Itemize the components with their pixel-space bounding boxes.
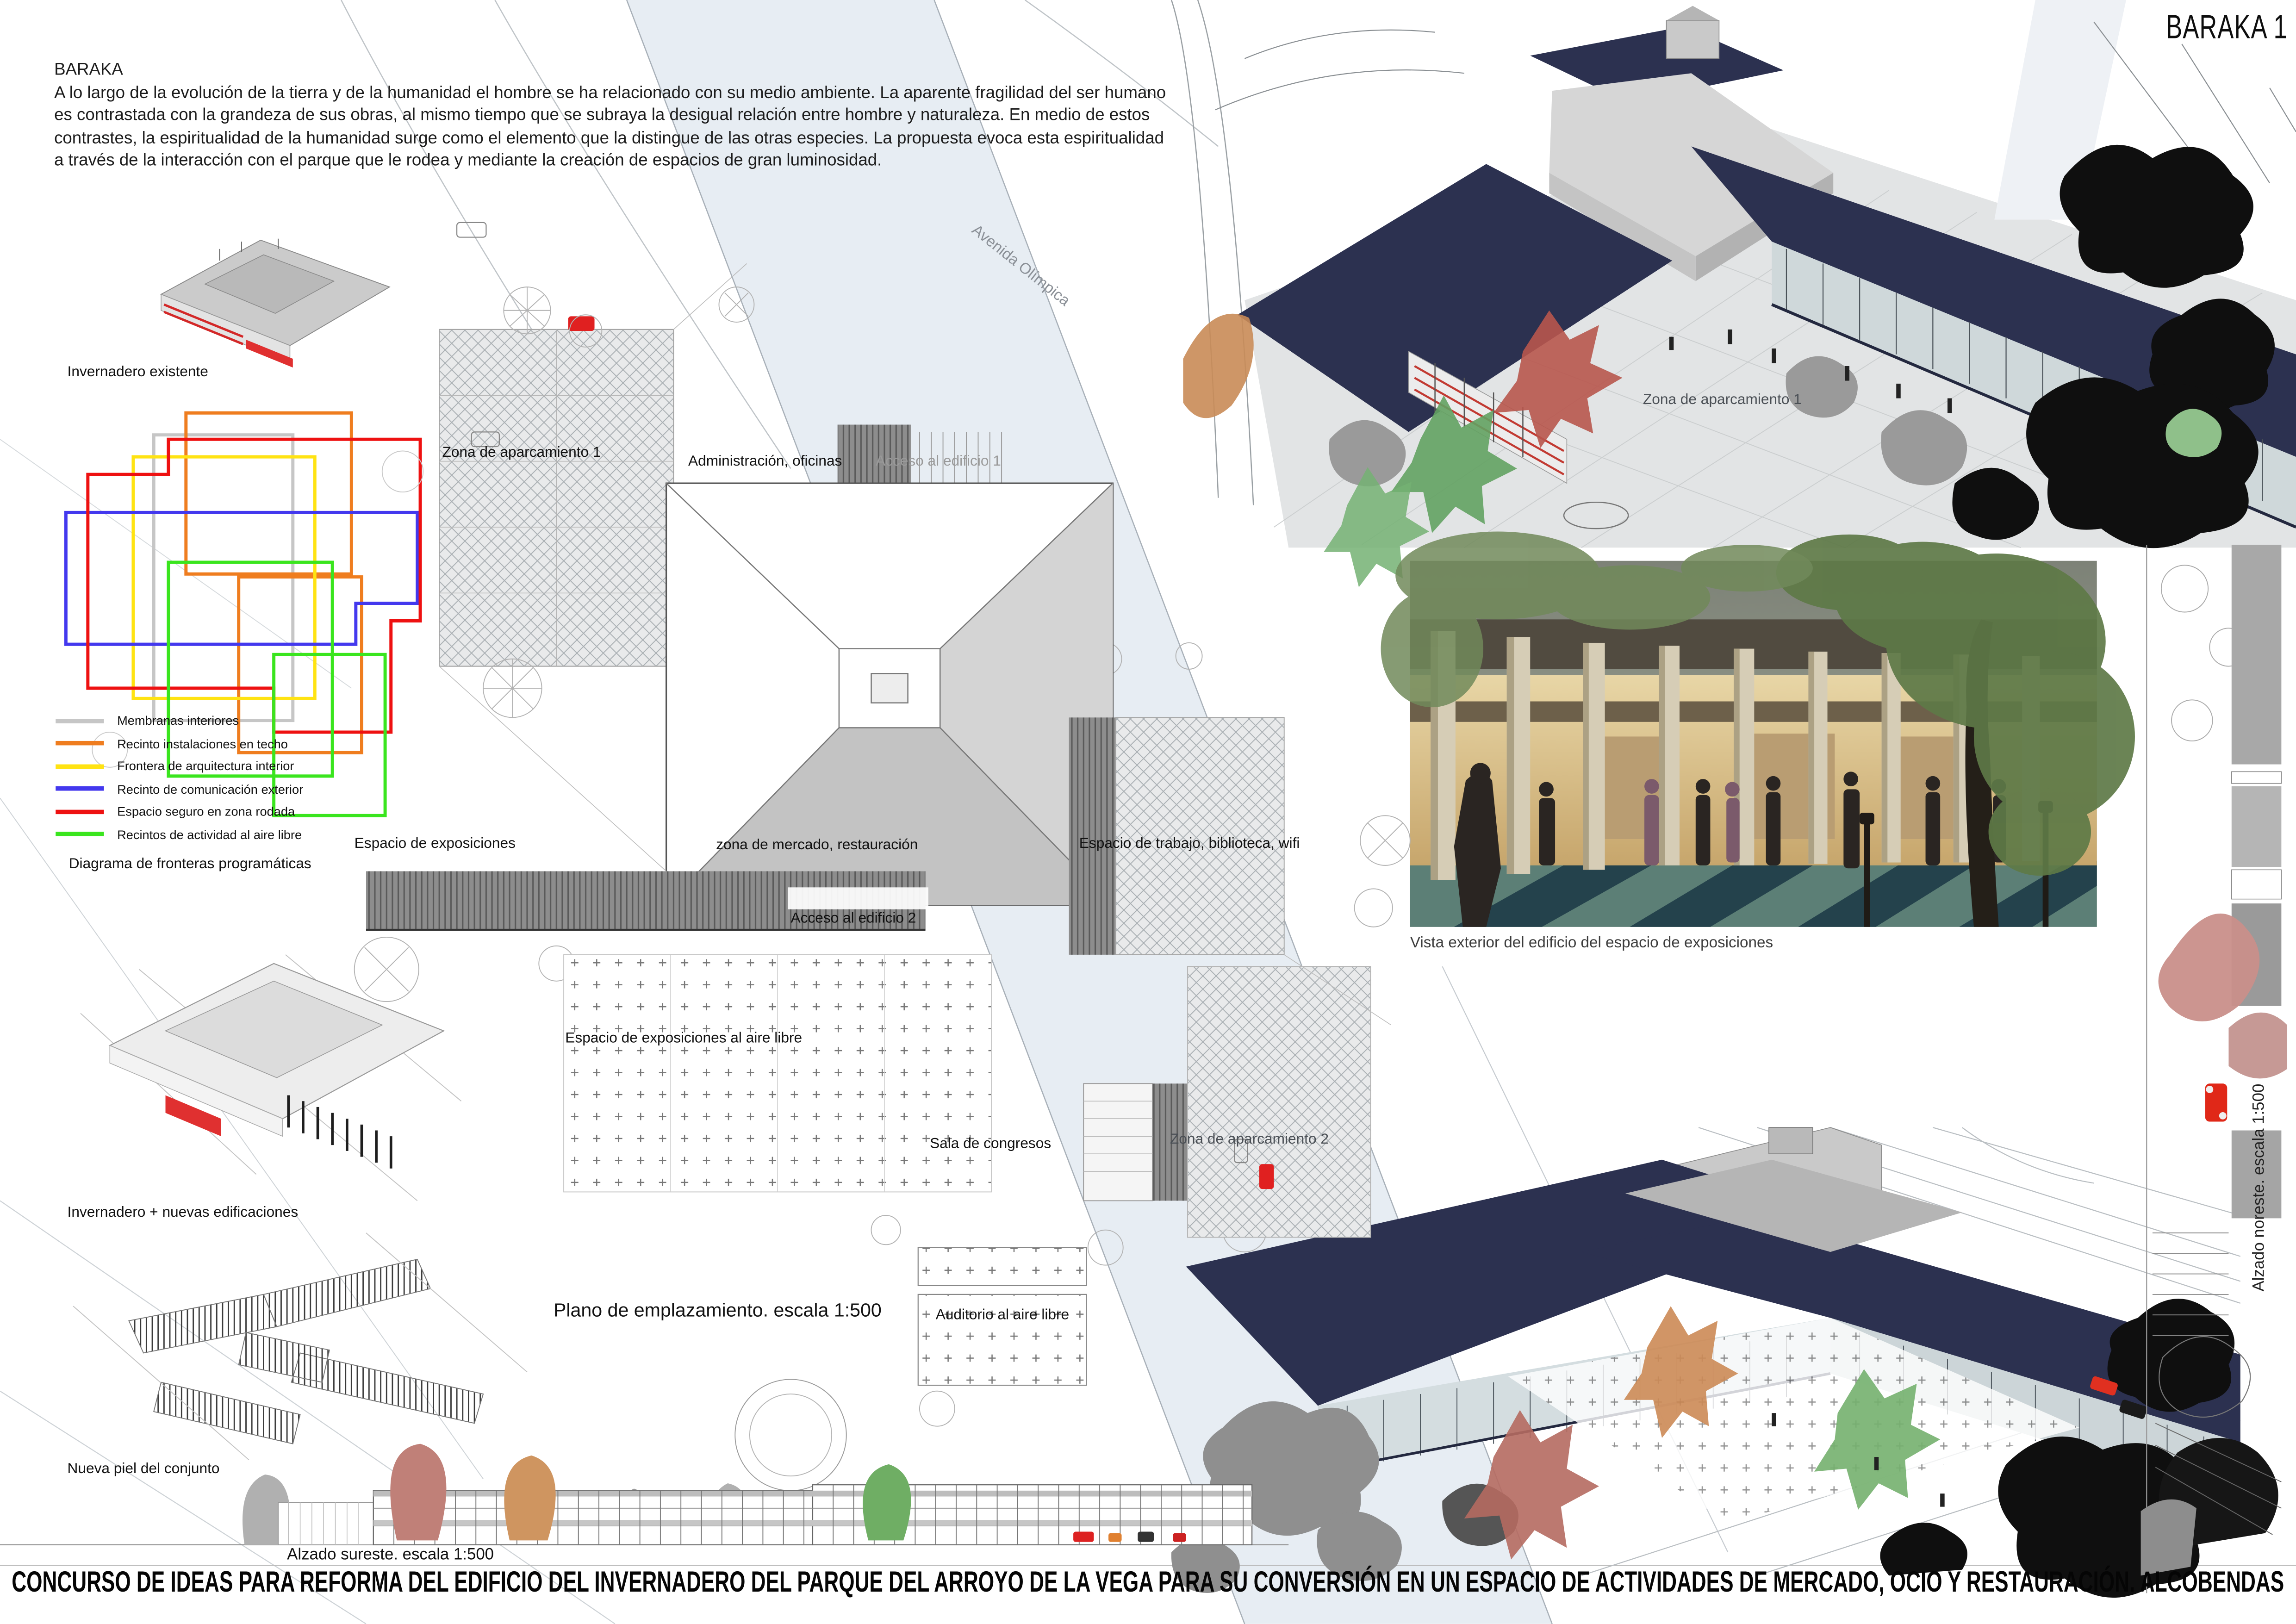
legend-swatch	[56, 718, 104, 722]
board-title: CONCURSO DE IDEAS PARA REFORMA DEL EDIFI…	[12, 1567, 1596, 1600]
label-elevation-southeast: Alzado sureste. escala 1:500	[287, 1546, 494, 1564]
label-auditorium: Auditorio al aire libre	[936, 1307, 1069, 1324]
panel-code: BARAKA 1	[2166, 7, 2288, 47]
legend-swatch	[56, 741, 104, 745]
label-existing-greenhouse: Invernadero existente	[68, 365, 208, 381]
existing-greenhouse-axon	[117, 229, 403, 369]
legend-item: Membranas interiores	[56, 713, 239, 728]
legend-swatch	[56, 809, 104, 813]
label-new-skin: Nueva piel del conjunto	[68, 1462, 220, 1478]
legend-item: Recinto de comunicación exterior	[56, 781, 303, 796]
competition-board: BARAKA A lo largo de la evolución de la …	[0, 0, 2296, 1623]
intro-paragraph: BARAKA A lo largo de la evolución de la …	[54, 59, 1173, 173]
render-photo-exterior	[1410, 561, 2097, 927]
label-parking1: Zona de aparcamiento 1	[442, 445, 601, 461]
elevation-low-block	[278, 1502, 373, 1545]
pink-tree-elevation	[390, 1444, 446, 1541]
legend-swatch	[56, 764, 104, 768]
red-car-plan	[568, 316, 595, 331]
green-tree-elevation	[863, 1464, 911, 1541]
intro-body: A lo largo de la evolución de la tierra …	[54, 83, 1166, 170]
label-admin: Administración, oficinas	[688, 454, 842, 470]
label-parking2: Zona de aparcamiento 2	[1170, 1132, 1329, 1148]
orange-tree-elevation	[504, 1456, 555, 1541]
label-access1: Acceso al edificio 1	[876, 454, 1001, 470]
elevation-northeast-strip	[2141, 545, 2296, 1593]
label-market: zona de mercado, restauración	[716, 838, 918, 854]
label-new-buildings: Invernadero + nuevas edificaciones	[68, 1205, 299, 1221]
plan-caption: Plano de emplazamiento. escala 1:500	[554, 1300, 882, 1321]
legend-swatch	[56, 786, 104, 790]
photo-caption: Vista exterior del edificio del espacio …	[1410, 936, 1773, 953]
label-congress: Sala de congresos	[930, 1136, 1051, 1152]
label-expo: Espacio de exposiciones	[355, 836, 516, 852]
greenhouse-new-buildings-axon	[81, 955, 461, 1207]
legend-item: Recinto instalaciones en techo	[56, 736, 288, 751]
legend-title: Diagrama de fronteras programáticas	[69, 857, 311, 873]
label-render-parking1: Zona de aparcamiento 1	[1643, 392, 1802, 409]
legend-item: Recintos de actividad al aire libre	[56, 827, 302, 841]
label-work: Espacio de trabajo, biblioteca, wifi	[1079, 836, 1300, 852]
parking2-area	[1188, 966, 1370, 1237]
elevation-southeast	[271, 1447, 1255, 1561]
legend-item: Frontera de arquitectura interior	[56, 759, 294, 773]
legend-item: Espacio seguro en zona rodada	[56, 804, 295, 819]
legend-swatch	[56, 832, 104, 836]
label-elevation-northeast: Alzado noreste. escala 1:500	[2251, 1084, 2268, 1292]
red-car-plan-2	[1259, 1164, 1274, 1189]
intro-title: BARAKA	[54, 59, 1173, 81]
new-skin-axon	[73, 1218, 527, 1467]
label-access2: Acceso al edificio 2	[791, 911, 916, 927]
label-expo-air: Espacio de exposiciones al aire libre	[565, 1031, 802, 1047]
